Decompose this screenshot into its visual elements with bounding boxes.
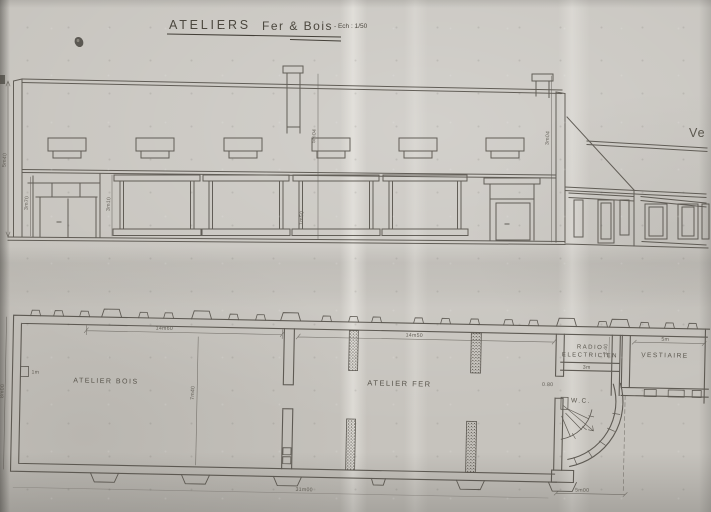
workshop-windows: [113, 175, 468, 236]
title-block: ATELIERS Fer & Bois - Ech : 1/50: [167, 18, 368, 41]
title-underline: [167, 34, 341, 41]
dim-radio-depth: 2.40: [603, 343, 610, 355]
paper-edge-notch: [0, 75, 5, 84]
room-label-atelier-bois: ATELIER BOIS: [73, 377, 138, 385]
room-label-radio-line2: ELECTRICIEN: [562, 352, 618, 359]
dim-total-height: 5m40: [2, 153, 9, 168]
dim-left-height: 8m00: [0, 384, 6, 398]
wc-curved-wall: [560, 382, 624, 467]
title-materials: Fer & Bois: [262, 19, 333, 33]
dim-left-wall: 3m70: [24, 196, 31, 210]
dim-bois-length: 14m60: [156, 326, 173, 332]
dim-vestiaire-width: 5m: [661, 337, 669, 343]
dim-radio-width: 3m: [583, 365, 591, 371]
dim-chimney-right: 3m04: [545, 131, 552, 146]
dim-niche: 1m: [31, 370, 39, 376]
room-label-wc: W.C.: [571, 397, 591, 404]
dim-left-door: 3m10: [106, 197, 113, 211]
dim-wc-width: 5m00: [575, 488, 589, 494]
right-door: [484, 178, 540, 240]
title-scale-note: - Ech : 1/50: [334, 23, 368, 30]
elevation-drawing: 5m40 3m70 3m10 1m50 5m04 3m04 Ve: [2, 66, 709, 248]
floor-plan-drawing: ATELIER BOIS ATELIER FER RADIO ELECTRICI…: [0, 307, 710, 501]
plan-sheet-svg: ATELIERS Fer & Bois - Ech : 1/50: [0, 0, 711, 512]
left-door: [28, 174, 100, 237]
annex-building: [565, 117, 709, 246]
roof-vents: [48, 138, 524, 158]
photo-artifacts: [0, 36, 85, 84]
ink-spot: [73, 36, 85, 49]
dim-chimney-left: 5m04: [311, 129, 318, 144]
title-workshop: ATELIERS: [169, 18, 251, 32]
dim-wc-door: 0.80: [542, 382, 553, 388]
ink-spot-highlight: [77, 39, 80, 42]
dim-window-height: 1m50: [299, 211, 306, 226]
dim-depth: 7m40: [190, 386, 197, 400]
dim-overall-length: 31m00: [295, 487, 312, 493]
dim-fer-length: 14m50: [406, 333, 423, 339]
hatched-piers: [346, 330, 482, 472]
photographed-architectural-drawing: ATELIERS Fer & Bois - Ech : 1/50: [0, 0, 711, 512]
room-label-radio-line1: RADIO: [577, 345, 604, 352]
label-ve: Ve: [689, 126, 706, 140]
room-label-vestiaire: VESTIAIRE: [641, 352, 689, 360]
room-label-atelier-fer: ATELIER FER: [367, 378, 431, 388]
elevation-dim-lines: [6, 74, 552, 242]
